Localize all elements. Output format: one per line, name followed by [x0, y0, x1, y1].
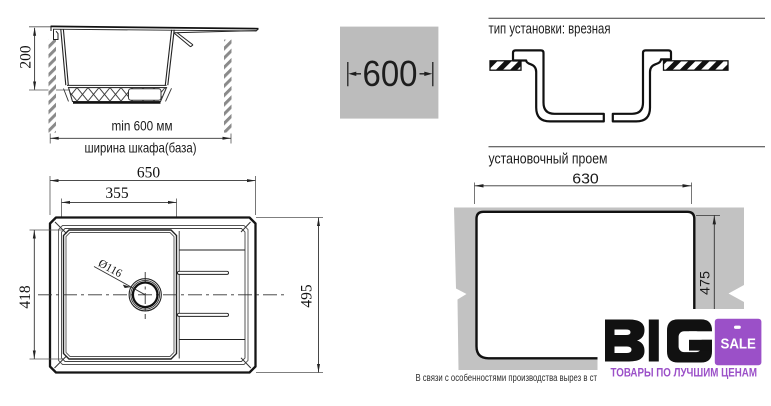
svg-text:ТОВАРЫ ПО ЛУЧШИМ ЦЕНАМ: ТОВАРЫ ПО ЛУЧШИМ ЦЕНАМ [611, 367, 758, 379]
svg-text:ширина шкафа(база): ширина шкафа(база) [85, 140, 197, 156]
svg-text:min 600 мм: min 600 мм [112, 119, 173, 134]
svg-text:SALE: SALE [720, 337, 756, 353]
svg-text:355: 355 [105, 185, 129, 202]
svg-text:установочный проем: установочный проем [489, 151, 608, 167]
svg-text:495: 495 [299, 284, 316, 308]
svg-text:475: 475 [697, 271, 712, 295]
svg-text:650: 650 [137, 165, 161, 182]
svg-text:630: 630 [572, 171, 599, 188]
svg-text:418: 418 [17, 285, 34, 309]
svg-text:600: 600 [363, 53, 418, 94]
svg-text:В связи с особенностями произв: В связи с особенностями производства выр… [416, 372, 598, 384]
svg-text:200: 200 [18, 45, 35, 69]
svg-text:тип установки: врезная: тип установки: врезная [489, 22, 611, 38]
